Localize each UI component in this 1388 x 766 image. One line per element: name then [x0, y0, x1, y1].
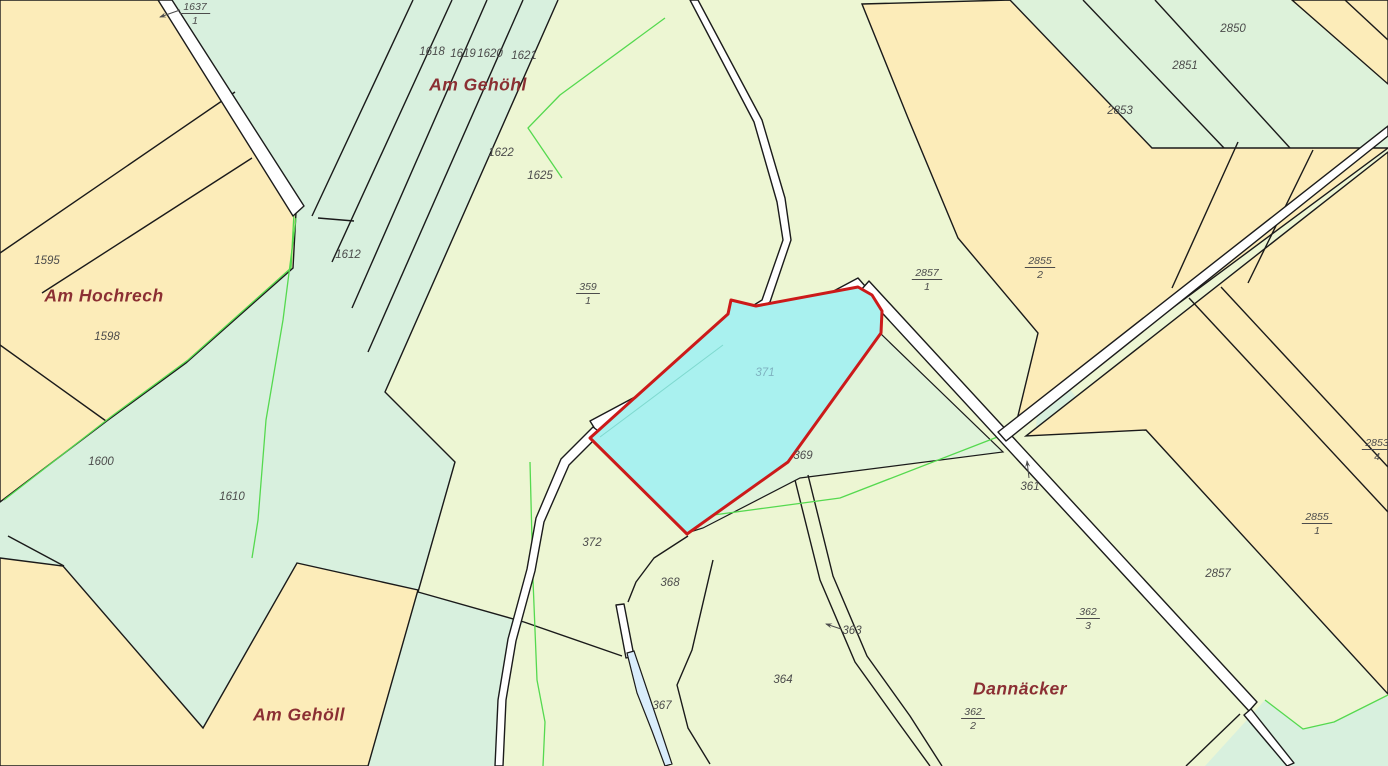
parcel-label-denominator: 1 — [585, 295, 591, 307]
place-name-label: Am Gehöhl — [428, 75, 527, 95]
parcel-label: 361 — [1020, 481, 1039, 493]
parcel-label: 369 — [793, 450, 813, 462]
parcel-label-numerator: 2857 — [914, 267, 940, 279]
parcel-label: 364 — [773, 674, 792, 686]
parcel-label: 1595 — [34, 255, 60, 267]
parcel-label: 372 — [582, 537, 602, 549]
parcel-label-numerator: 2855 — [1027, 255, 1052, 267]
parcel-label-denominator: 2 — [969, 720, 976, 732]
parcel-label: 1621 — [511, 50, 537, 62]
parcel-label-numerator: 362 — [964, 706, 982, 718]
parcel-label: 368 — [660, 577, 680, 589]
parcel-label-numerator: 2855 — [1304, 511, 1329, 523]
parcel-label-numerator: 362 — [1079, 606, 1097, 618]
place-name-label: Dannäcker — [973, 679, 1068, 699]
parcel-label-denominator: 2 — [1036, 269, 1043, 281]
parcel-label: 2851 — [1171, 60, 1198, 72]
parcel-label: 1600 — [88, 456, 114, 468]
map-canvas[interactable]: 1637116181619162016211622162516121595159… — [0, 0, 1388, 766]
parcel-label-denominator: 1 — [192, 15, 198, 27]
parcel-label: 1612 — [335, 249, 361, 261]
parcel-label: 1619 — [450, 48, 476, 60]
parcel-label: 363 — [842, 625, 862, 637]
parcel-label: 2850 — [1219, 23, 1246, 35]
parcel-label: 1598 — [94, 331, 120, 343]
parcel-label-denominator: 3 — [1085, 620, 1091, 632]
cadastral-map[interactable]: 1637116181619162016211622162516121595159… — [0, 0, 1388, 766]
parcel-label: 1618 — [419, 46, 445, 58]
place-name-label: Am Gehöll — [252, 705, 346, 725]
parcel-label-denominator: 1 — [924, 281, 930, 293]
parcel-label: 1622 — [488, 147, 514, 159]
parcel-label: 1620 — [477, 48, 503, 60]
place-name-label: Am Hochrech — [43, 286, 163, 306]
parcel-label: 367 — [652, 700, 672, 712]
parcel-label-numerator: 2853 — [1364, 437, 1388, 449]
parcel-label-numerator: 359 — [579, 281, 597, 293]
parcel-label-denominator: 4 — [1374, 451, 1380, 463]
parcel-label: 2857 — [1204, 568, 1231, 580]
parcel-label: 1625 — [527, 170, 553, 182]
parcel-label-denominator: 1 — [1314, 525, 1320, 537]
parcel-label: 1610 — [219, 491, 245, 503]
parcel-label: 2853 — [1106, 105, 1133, 117]
parcel-label: 371 — [755, 367, 774, 379]
parcel-label-numerator: 1637 — [183, 1, 208, 13]
